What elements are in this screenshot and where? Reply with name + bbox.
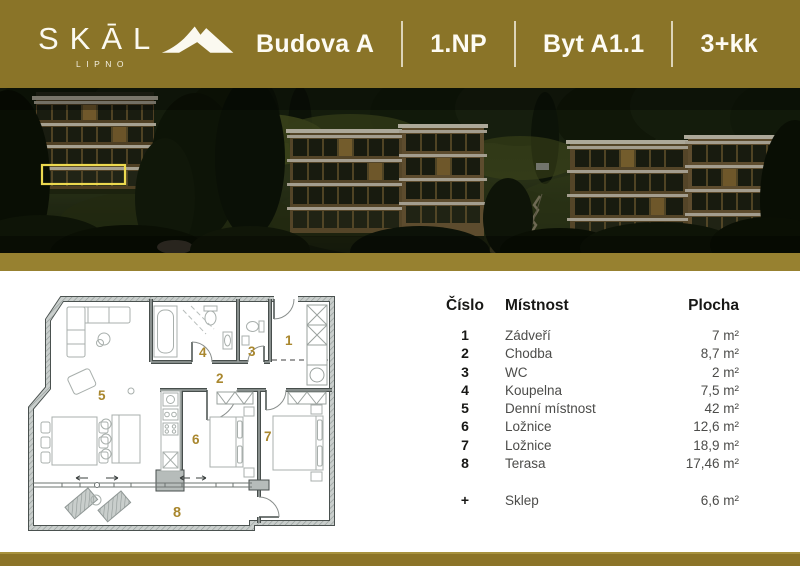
row-number: 1 [443, 327, 487, 343]
brand-name: SKĀL [38, 23, 161, 54]
brand-subtitle: LIPNO [76, 59, 235, 69]
building-render-photo [0, 88, 800, 253]
row-area: 8,7 m² [662, 346, 739, 361]
row-number: + [443, 492, 487, 508]
table-header: Číslo Místnost Plocha [443, 297, 739, 315]
room-number-1: 1 [285, 333, 293, 348]
living-room-furniture [41, 307, 140, 465]
photo-top-vignette [0, 88, 800, 110]
row-number: 4 [443, 382, 487, 398]
row-room: Terasa [487, 456, 662, 471]
separator [401, 21, 403, 67]
gold-divider-band [0, 253, 800, 271]
separator [514, 21, 516, 67]
room-number-2: 2 [216, 371, 224, 386]
table-row: 2 Chodba 8,7 m² [443, 345, 739, 363]
room-number-8: 8 [173, 505, 181, 521]
row-area: 42 m² [662, 401, 739, 416]
table-row: 8 Terasa 17,46 m² [443, 455, 739, 473]
row-room: WC [487, 365, 662, 380]
unit-label: Byt A1.1 [543, 30, 645, 59]
row-number: 2 [443, 345, 487, 361]
apartment-sheet: SKĀL LIPNO Budova A 1.NP Byt A1.1 3+kk [0, 0, 800, 566]
row-room: Chodba [487, 346, 662, 361]
row-room: Denní místnost [487, 401, 662, 416]
row-number: 8 [443, 455, 487, 471]
photo-dark-overlay [0, 88, 800, 253]
brand-logo: SKĀL LIPNO [38, 19, 235, 69]
table-row: 5 Denní místnost 42 m² [443, 400, 739, 418]
row-area: 18,9 m² [662, 438, 739, 453]
header: SKĀL LIPNO Budova A 1.NP Byt A1.1 3+kk [0, 0, 800, 88]
row-room: Sklep [487, 493, 662, 508]
col-area-header: Plocha [662, 297, 739, 315]
row-area: 2 m² [662, 365, 739, 380]
unit-info-bar: Budova A 1.NP Byt A1.1 3+kk [256, 21, 758, 67]
mountain-logo-icon [161, 19, 235, 57]
table-row: 7 Ložnice 18,9 m² [443, 437, 739, 455]
photo-bottom-vignette [0, 236, 800, 253]
room-number-6: 6 [192, 432, 200, 447]
table-row: 6 Ložnice 12,6 m² [443, 418, 739, 436]
table-row: 1 Zádveří 7 m² [443, 327, 739, 345]
room-number-4: 4 [199, 345, 207, 360]
row-area: 17,46 m² [662, 456, 739, 471]
col-number-header: Číslo [443, 297, 487, 315]
row-area: 7 m² [662, 328, 739, 343]
row-number: 6 [443, 418, 487, 434]
wc-fixtures [242, 321, 264, 345]
table-row-cellar: + Sklep 6,6 m² [443, 492, 739, 510]
room-number-3: 3 [248, 344, 256, 359]
floorplan: 1 2 3 4 5 6 7 8 [20, 292, 350, 537]
separator [671, 21, 673, 67]
row-number: 7 [443, 437, 487, 453]
doors [192, 299, 294, 517]
row-room: Ložnice [487, 419, 662, 434]
gold-footer-band [0, 552, 800, 566]
row-room: Ložnice [487, 438, 662, 453]
table-row: 4 Koupelna 7,5 m² [443, 382, 739, 400]
room-number-7: 7 [264, 429, 272, 444]
col-room-header: Místnost [487, 297, 662, 315]
slide-arrows [76, 476, 206, 480]
row-number: 3 [443, 364, 487, 380]
layout-label: 3+kk [700, 30, 758, 59]
row-area: 12,6 m² [662, 419, 739, 434]
sliding-glass-wall [33, 483, 252, 488]
terrace-furniture [65, 488, 131, 522]
room-number-5: 5 [98, 388, 106, 403]
row-room: Koupelna [487, 383, 662, 398]
row-room: Zádveří [487, 328, 662, 343]
room-table: Číslo Místnost Plocha 1 Zádveří 7 m² 2 C… [443, 297, 739, 511]
table-row: 3 WC 2 m² [443, 364, 739, 382]
row-area: 7,5 m² [662, 383, 739, 398]
row-area: 6,6 m² [662, 493, 739, 508]
floor-label: 1.NP [430, 30, 487, 59]
row-number: 5 [443, 400, 487, 416]
building-label: Budova A [256, 30, 374, 59]
bathroom-fixtures [154, 306, 232, 357]
kitchen-counter [161, 391, 180, 471]
